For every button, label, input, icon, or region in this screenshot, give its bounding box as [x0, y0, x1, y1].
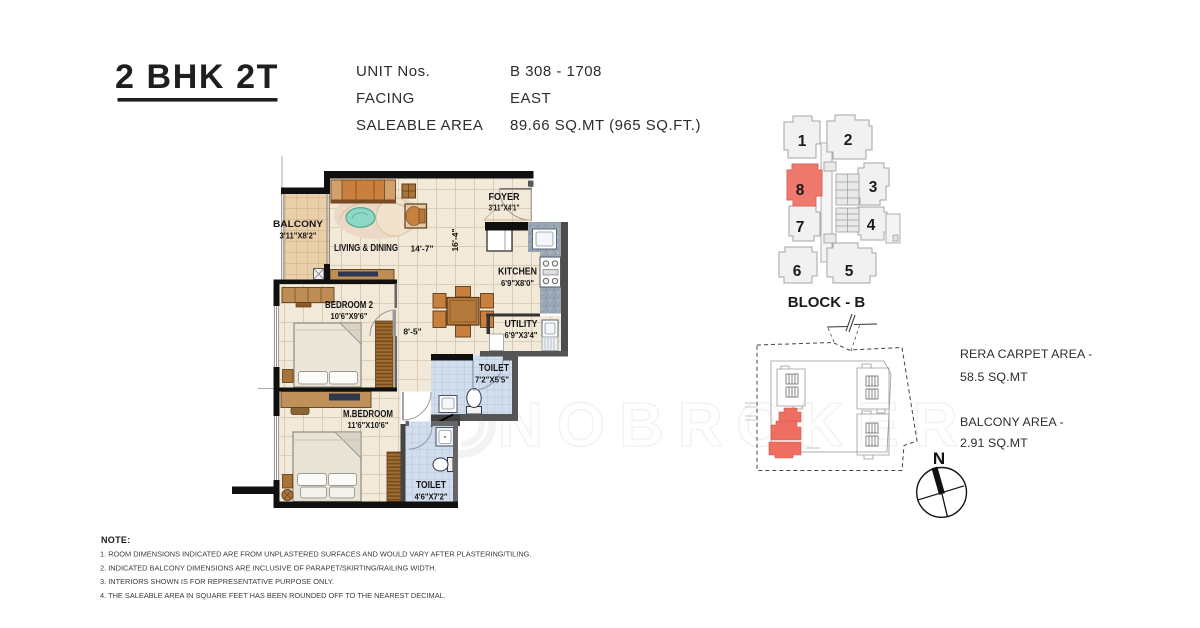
- svg-text:BALCONY AREA -: BALCONY AREA -: [960, 415, 1064, 429]
- svg-text:FACING: FACING: [356, 90, 415, 107]
- svg-text:58.5 SQ.MT: 58.5 SQ.MT: [960, 370, 1028, 384]
- svg-text:4'6"X7'2": 4'6"X7'2": [415, 493, 448, 502]
- svg-text:3'11"X8'2": 3'11"X8'2": [280, 232, 317, 241]
- svg-text:6'9"X3'4": 6'9"X3'4": [505, 331, 538, 340]
- svg-text:BEDROOM 2: BEDROOM 2: [325, 300, 373, 311]
- svg-text:NOBROKER: NOBROKER: [498, 391, 972, 460]
- svg-text:RERA CARPET AREA -: RERA CARPET AREA -: [960, 347, 1092, 361]
- svg-text:UTILITY: UTILITY: [505, 319, 538, 330]
- svg-text:2. INDICATED BALCONY DIMENSION: 2. INDICATED BALCONY DIMENSIONS ARE INCL…: [100, 564, 437, 573]
- svg-text:LIVING & DINING: LIVING & DINING: [334, 242, 398, 254]
- svg-text:FOYER: FOYER: [489, 192, 521, 203]
- svg-text:3: 3: [869, 179, 878, 196]
- svg-text:7: 7: [796, 219, 805, 236]
- svg-text:BALCONY: BALCONY: [273, 219, 324, 230]
- svg-text:M.BEDROOM: M.BEDROOM: [343, 409, 393, 420]
- svg-text:14'-7": 14'-7": [410, 244, 433, 254]
- svg-text:NOTE:: NOTE:: [101, 535, 131, 545]
- svg-text:SALEABLE AREA: SALEABLE AREA: [356, 117, 483, 134]
- svg-text:3'11"X4'1": 3'11"X4'1": [489, 204, 520, 213]
- svg-text:6: 6: [793, 263, 802, 280]
- svg-text:TOILET: TOILET: [416, 480, 446, 491]
- svg-text:8: 8: [796, 182, 805, 199]
- svg-text:1. ROOM DIMENSIONS INDICATED A: 1. ROOM DIMENSIONS INDICATED ARE FROM UN…: [100, 550, 531, 559]
- svg-text:1: 1: [798, 133, 807, 150]
- svg-text:7'2"X5'5": 7'2"X5'5": [475, 376, 509, 385]
- svg-text:3. INTERIORS SHOWN IS FOR REPR: 3. INTERIORS SHOWN IS FOR REPRESENTATIVE…: [100, 577, 334, 586]
- svg-text:5: 5: [845, 263, 854, 280]
- svg-text:89.66 SQ.MT (965 SQ.FT.): 89.66 SQ.MT (965 SQ.FT.): [510, 117, 701, 134]
- svg-text:11'6"X10'6": 11'6"X10'6": [348, 421, 389, 430]
- svg-text:KITCHEN: KITCHEN: [498, 267, 537, 278]
- svg-text:EAST: EAST: [510, 90, 551, 107]
- svg-text:N: N: [933, 449, 945, 468]
- svg-text:8'-5": 8'-5": [403, 327, 421, 337]
- svg-text:UNIT Nos.: UNIT Nos.: [356, 63, 430, 80]
- svg-text:2 BHK 2T: 2 BHK 2T: [115, 58, 279, 96]
- svg-text:16'-4": 16'-4": [450, 228, 460, 251]
- svg-text:2: 2: [844, 132, 853, 149]
- svg-text:TOILET: TOILET: [479, 363, 509, 374]
- svg-text:6'9"X8'0": 6'9"X8'0": [501, 279, 534, 288]
- svg-text:4: 4: [867, 217, 876, 234]
- svg-text:10'6"X9'6": 10'6"X9'6": [331, 312, 368, 321]
- svg-text:BLOCK - B: BLOCK - B: [788, 294, 866, 311]
- svg-text:2.91 SQ.MT: 2.91 SQ.MT: [960, 436, 1028, 450]
- svg-text:B 308 - 1708: B 308 - 1708: [510, 63, 602, 80]
- svg-text:4. THE SALEABLE AREA IN SQUARE: 4. THE SALEABLE AREA IN SQUARE FEET HAS …: [100, 591, 446, 600]
